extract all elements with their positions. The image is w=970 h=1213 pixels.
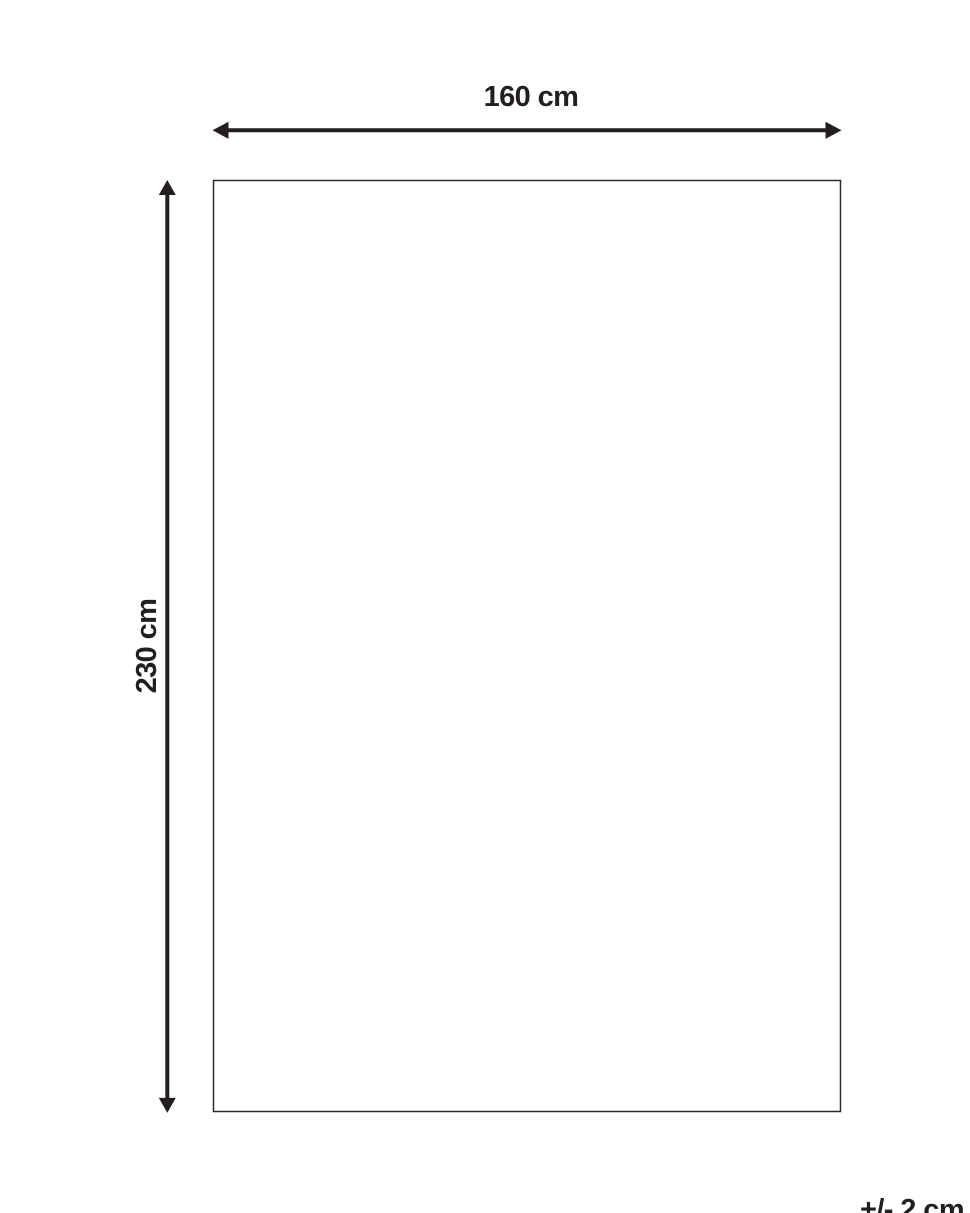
svg-text:230 cm: 230 cm — [131, 599, 163, 694]
svg-text:160 cm: 160 cm — [484, 81, 579, 113]
svg-text:+/- 2 cm: +/- 2 cm — [860, 1194, 964, 1213]
